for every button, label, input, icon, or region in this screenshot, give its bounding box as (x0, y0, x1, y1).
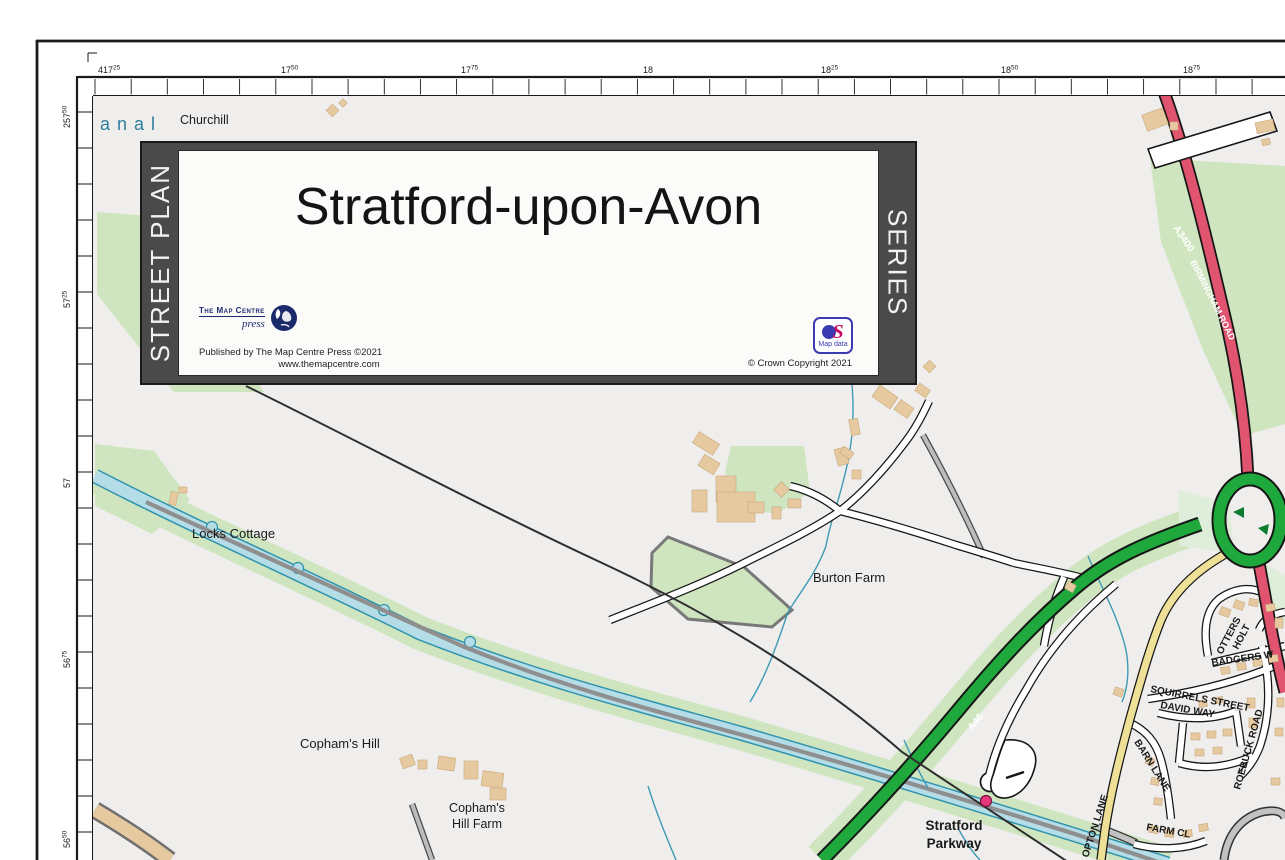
grid-label-northing: 5650 (62, 830, 73, 848)
grid-label-northing: 57 (62, 478, 72, 488)
published-line: Published by The Map Centre Press ©2021 (199, 347, 459, 359)
map-label: Parkway (927, 836, 982, 851)
map-label: anal (100, 114, 162, 134)
map-label: Copham's Hill (300, 736, 380, 751)
map-label: Locks Cottage (192, 526, 275, 541)
map-label: Burton Farm (813, 570, 885, 585)
banner-series-bar-left: STREET PLAN (142, 143, 178, 383)
globe-icon (269, 303, 299, 333)
street-plan-label: STREET PLAN (145, 163, 176, 362)
publisher-press-label: press (199, 318, 265, 330)
publisher-credit: Published by The Map Centre Press ©2021 … (199, 347, 459, 371)
publisher-name: The Map Centre (199, 306, 265, 317)
series-label: SERIES (882, 209, 913, 316)
grid-label-easting: 1875 (1183, 65, 1201, 76)
grid-corner-mark (88, 53, 97, 62)
publisher-url: www.themapcentre.com (199, 359, 459, 371)
grid-label-easting: 41725 (98, 65, 121, 76)
map-title: Stratford-upon-Avon (179, 177, 878, 237)
grid-label-northing: 5725 (62, 290, 73, 308)
map-label: Copham's (449, 801, 505, 815)
map-label: Stratford (926, 818, 983, 833)
crown-copyright: © Crown Copyright 2021 (748, 358, 852, 369)
grid-label-easting: 1850 (1001, 65, 1019, 76)
map-label: Hill Farm (452, 817, 502, 831)
grid-label-easting: 18 (643, 65, 653, 75)
grid-label-easting: 1825 (821, 65, 839, 76)
street-map-canvas[interactable]: analChurchillLocks CottageBurton FarmCop… (0, 0, 1285, 860)
station-stratford-parkway (981, 796, 992, 807)
os-map-data-logo: S Map data (813, 317, 853, 354)
banner-series-bar-right: SERIES (879, 143, 915, 383)
map-label: Churchill (180, 113, 229, 127)
grid-label-northing: 5675 (62, 650, 73, 668)
grid-label-easting: 1775 (461, 65, 479, 76)
grid-label-northing: 25750 (62, 105, 73, 128)
os-logo-caption: Map data (818, 341, 847, 348)
title-banner: STREET PLAN Stratford-upon-Avon The Map … (140, 141, 917, 385)
publisher-logo: The Map Centre press (199, 303, 299, 333)
grid-label-easting: 1750 (281, 65, 299, 76)
os-logo-s: S (832, 323, 843, 341)
banner-panel: Stratford-upon-Avon The Map Centre press… (178, 150, 879, 376)
